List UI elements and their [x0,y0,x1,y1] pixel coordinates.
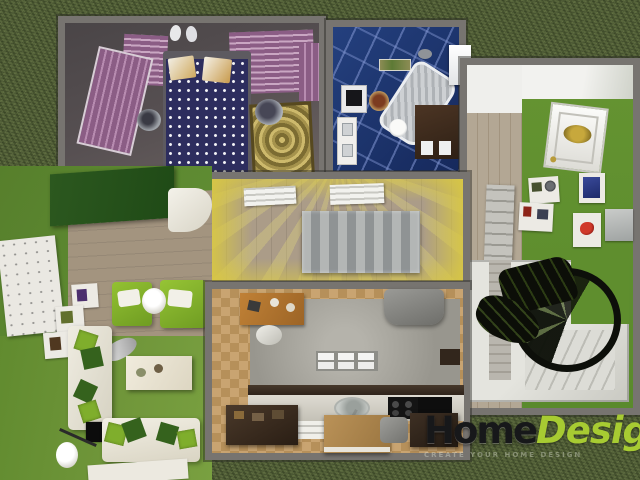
photo [537,209,549,220]
door-knob-icon [550,156,557,163]
laundry-basket[interactable] [369,91,389,111]
wall-shelf[interactable] [330,183,385,205]
wall-mirror[interactable] [605,209,633,241]
logo-text-secondary: Design [536,412,640,452]
green-cabinet[interactable] [50,166,174,227]
shelf-decor [60,311,73,324]
cabinet[interactable] [226,405,298,445]
desk-item [286,303,295,312]
radiator-cell [338,362,354,369]
desk[interactable] [240,293,304,325]
table-lamp[interactable] [56,442,78,468]
rose-icon [580,222,594,235]
bowl-planter[interactable] [137,109,161,131]
burner-icon [392,401,399,408]
table-decor [136,368,146,377]
watermark-logo: HomeDesign CREATE YOUR HOME DESIGN [424,412,640,472]
cabinet-item [252,413,264,421]
vanity-sink [421,141,433,155]
photo [531,182,542,192]
pillow[interactable] [202,57,232,84]
sofa[interactable] [68,326,112,430]
pillow[interactable] [168,55,197,80]
radiator[interactable] [316,351,378,371]
sofa-cushion [78,400,102,424]
burner-icon [392,410,399,416]
round-side-table[interactable] [142,288,166,314]
bed-frame[interactable] [163,51,251,179]
logo-tagline: CREATE YOUR HOME DESIGN [424,452,640,459]
lounge-chair[interactable] [384,289,444,325]
island-edge [324,447,390,452]
wall-clock-icon [544,180,556,192]
logo-text-primary: Home [424,412,536,452]
wardrobe-side[interactable] [299,43,319,101]
sink-cabinet[interactable] [337,117,357,165]
radiator-cell [358,353,374,360]
coffee-table[interactable] [126,356,192,390]
wall-photo-card[interactable] [528,176,560,204]
room-bathroom[interactable] [326,20,466,178]
wall-cabinet[interactable] [440,349,460,365]
radiator-cell [318,353,334,360]
room-living[interactable] [0,166,212,480]
sofa-cushion [177,429,198,450]
armchair-cushion [117,289,141,308]
slipper-icon[interactable] [169,24,182,41]
cabinet-item [234,411,244,419]
desk-item [270,298,279,307]
desk-item [247,300,261,312]
front-door[interactable] [543,102,609,175]
vanity-cabinet[interactable] [415,105,459,159]
burner-icon [405,401,412,408]
frame-art [583,177,600,198]
basin [342,123,353,136]
wall-frame[interactable] [579,173,605,203]
washing-machine-lid [346,90,362,106]
3d-floorplan-view: HomeDesign CREATE YOUR HOME DESIGN [0,0,640,480]
armchair[interactable] [160,280,206,328]
wall-shelf[interactable] [244,186,297,207]
slipper-icon[interactable] [185,25,198,42]
wardrobe[interactable] [76,46,153,156]
sofa-cushion [80,346,104,370]
toilet[interactable] [389,119,407,137]
radiator-cell [318,362,334,369]
radiator-cell [358,362,374,369]
washing-machine[interactable] [341,85,367,113]
armchair-cushion [167,289,193,308]
room-stairwell[interactable] [467,260,629,402]
bath-mat[interactable] [379,59,411,71]
hall-ceiling-edge [522,65,633,99]
shelf-decor [77,289,88,302]
shower-head-icon [418,49,432,59]
wall-panel-dotted[interactable] [0,235,65,337]
sofa[interactable] [102,418,200,462]
room-bedroom[interactable] [58,16,326,178]
sideboard[interactable] [302,211,420,273]
wall-frame[interactable] [573,213,601,247]
sofa-cushion [156,422,180,446]
basin [342,144,353,157]
round-side-stand[interactable] [255,99,283,125]
vanity-sink [439,141,451,155]
red-decor [523,206,532,216]
room-corridor[interactable] [205,172,470,288]
chair[interactable] [380,417,408,443]
shelf-decor [49,337,61,351]
wall-photo-card[interactable] [518,202,553,232]
desk-chair[interactable] [256,325,282,345]
radiator-cell [338,353,354,360]
cabinet-item [272,410,284,419]
table-decor [154,364,163,373]
